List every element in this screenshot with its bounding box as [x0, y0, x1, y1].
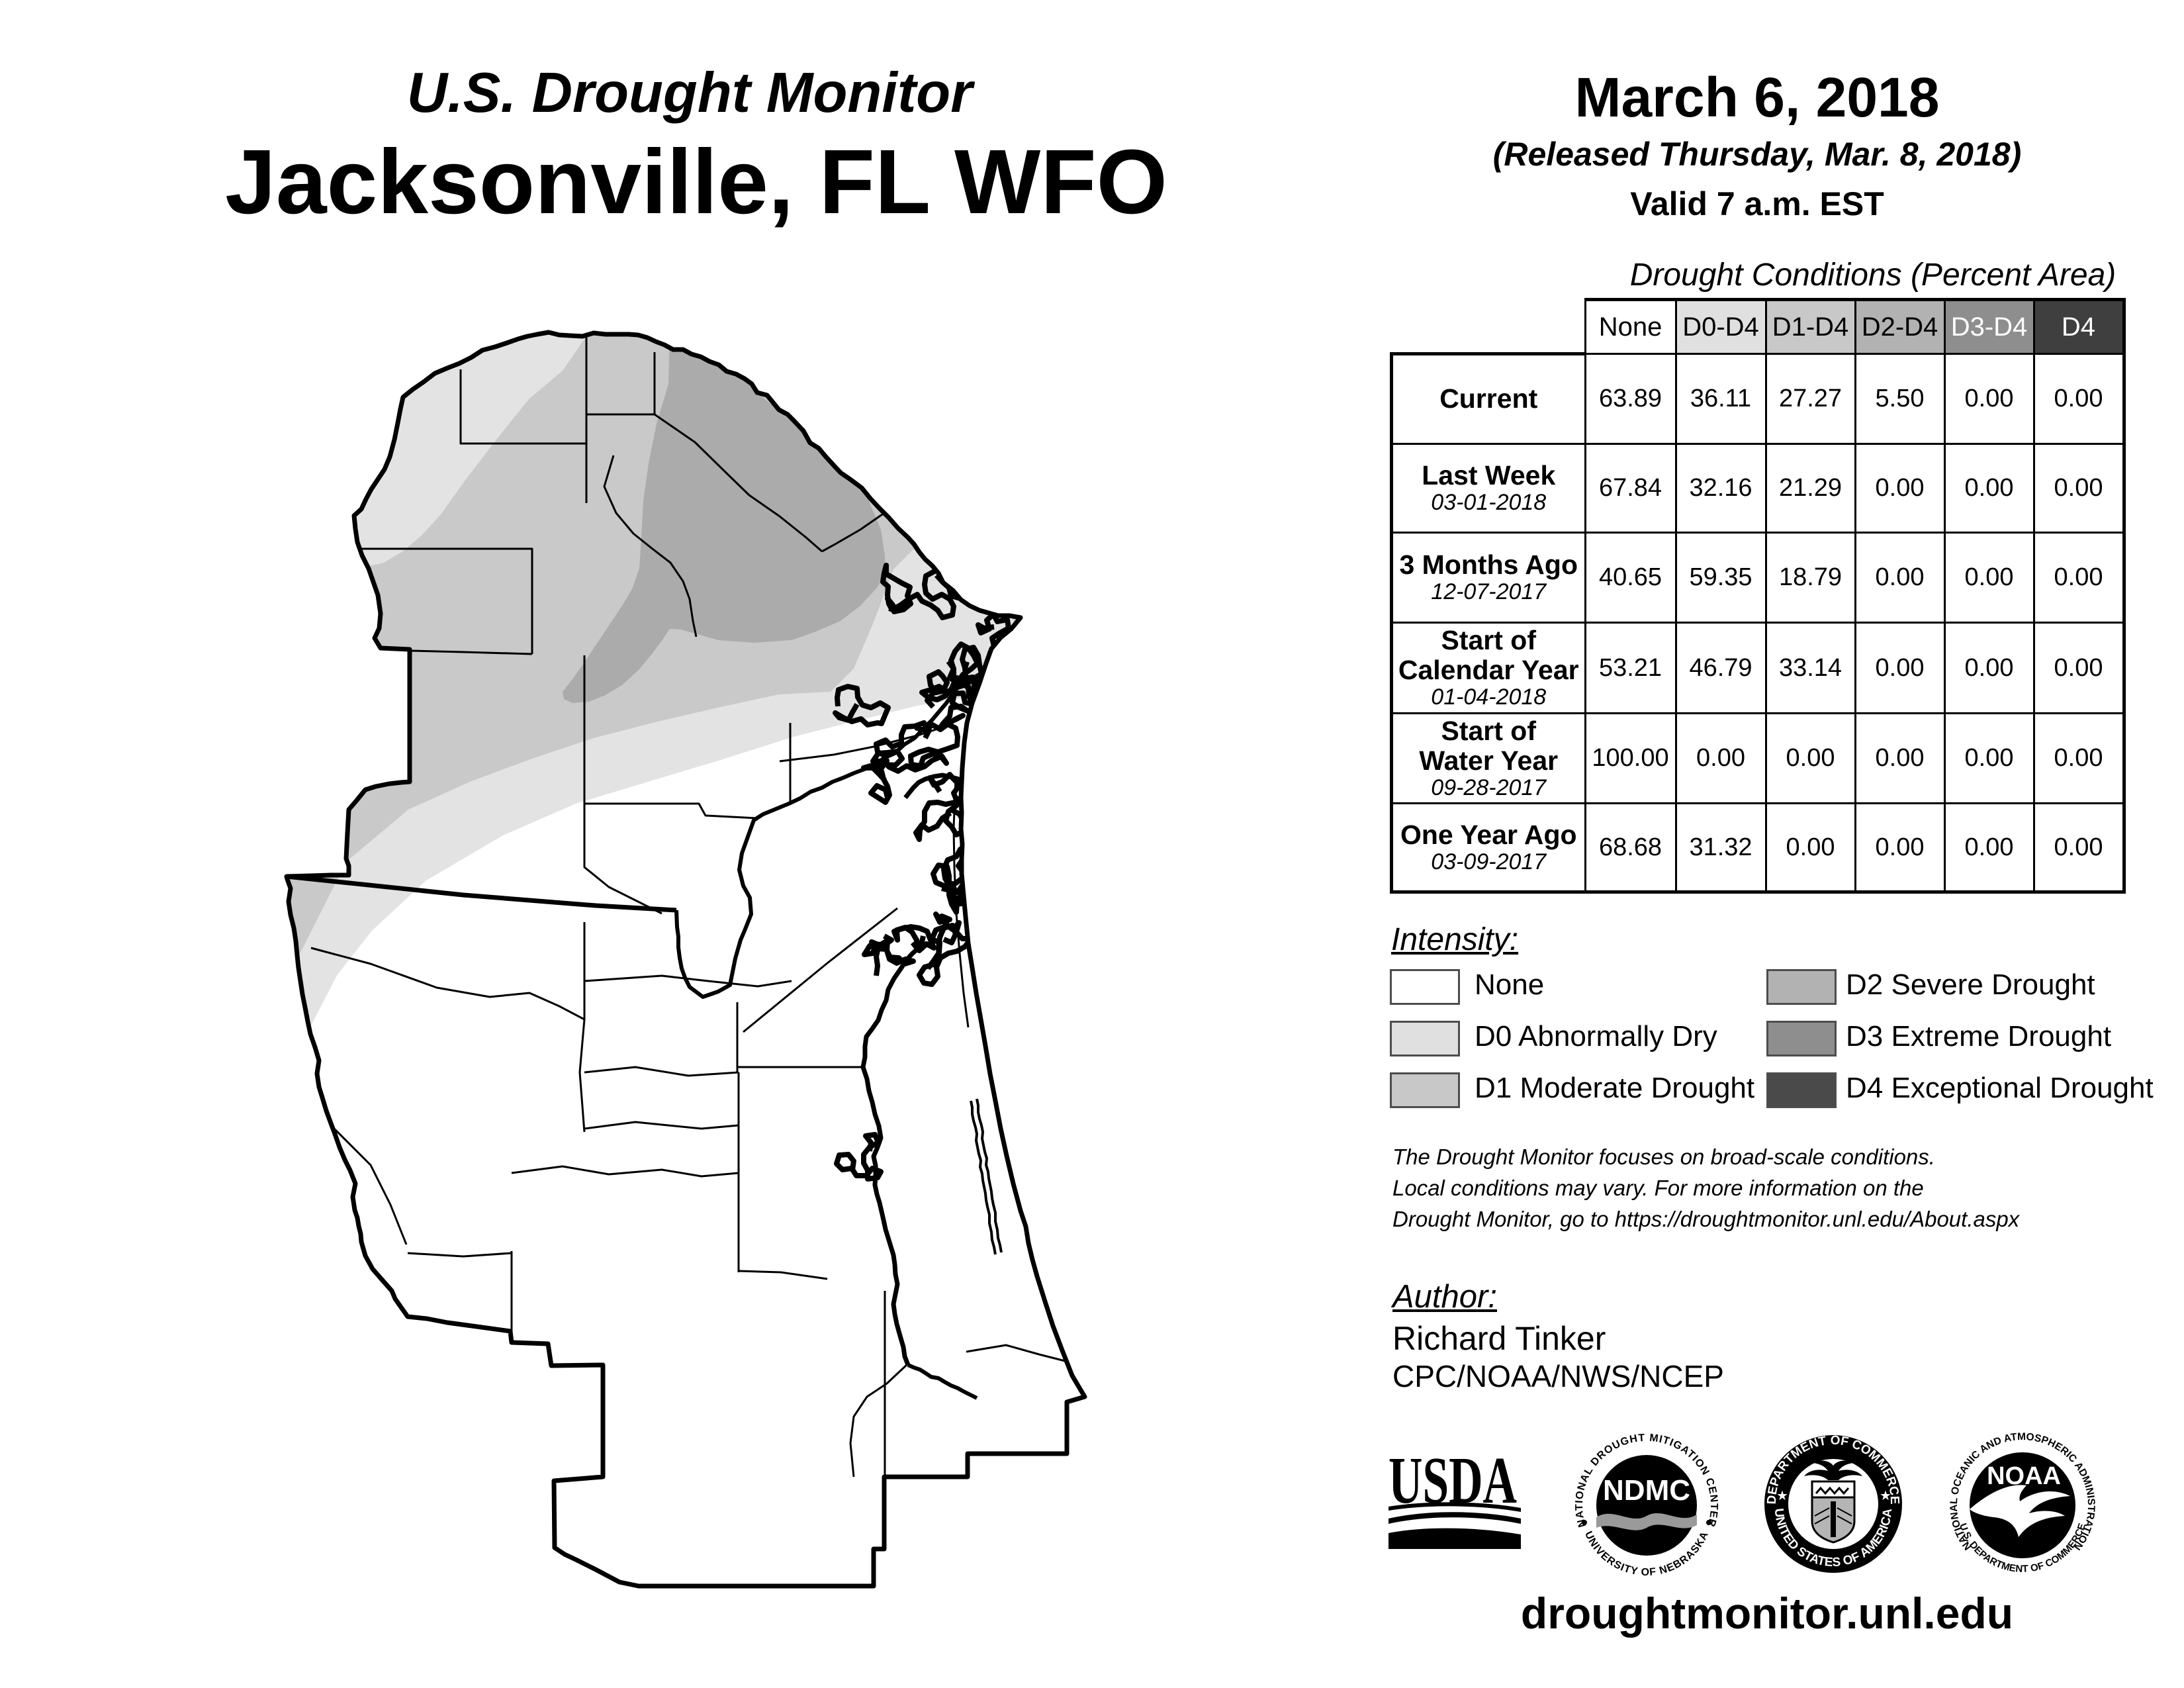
- svg-text:NOAA: NOAA: [1987, 1462, 2061, 1490]
- svg-text:★: ★: [1880, 1489, 1891, 1503]
- svg-text:NDMC: NDMC: [1603, 1474, 1690, 1507]
- svg-text:★: ★: [1776, 1489, 1788, 1503]
